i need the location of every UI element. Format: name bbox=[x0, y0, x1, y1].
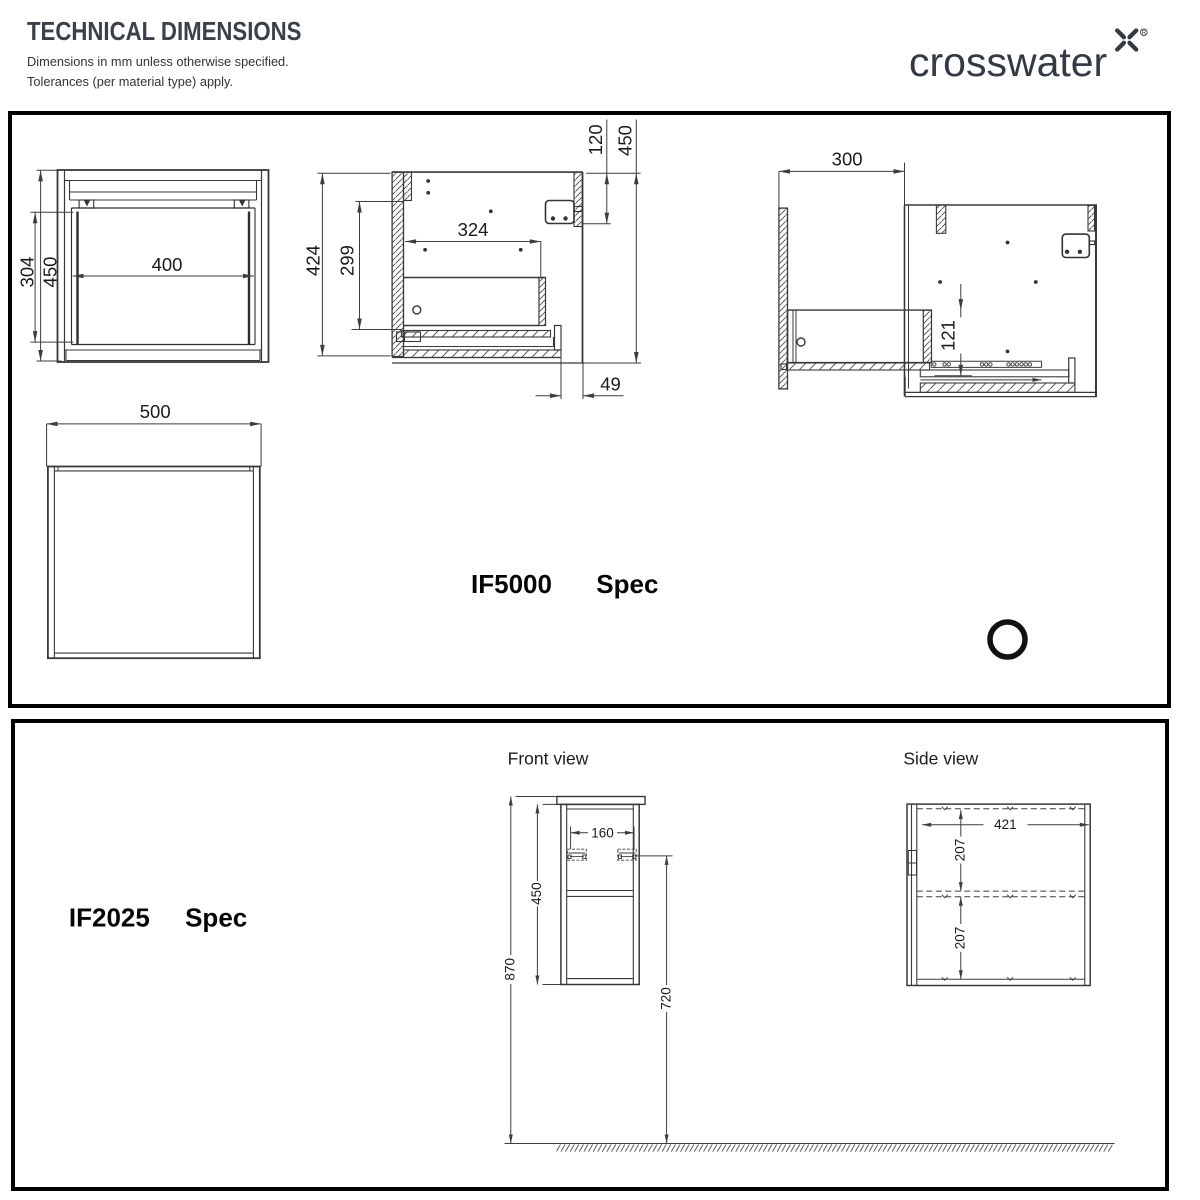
svg-text:870: 870 bbox=[503, 958, 518, 981]
svg-text:crosswater: crosswater bbox=[909, 39, 1107, 85]
svg-text:421: 421 bbox=[994, 817, 1017, 832]
svg-text:450: 450 bbox=[529, 882, 544, 905]
svg-text:207: 207 bbox=[953, 926, 968, 949]
svg-text:720: 720 bbox=[658, 987, 673, 1010]
svg-text:121: 121 bbox=[938, 320, 959, 351]
svg-text:424: 424 bbox=[303, 245, 324, 276]
svg-text:207: 207 bbox=[953, 838, 968, 861]
svg-text:299: 299 bbox=[337, 245, 358, 276]
svg-text:120: 120 bbox=[585, 124, 606, 155]
svg-text:304: 304 bbox=[17, 257, 38, 288]
svg-text:160: 160 bbox=[591, 825, 614, 840]
svg-text:Spec: Spec bbox=[185, 902, 247, 932]
svg-text:450: 450 bbox=[40, 257, 61, 288]
svg-text:400: 400 bbox=[152, 254, 183, 275]
svg-text:300: 300 bbox=[832, 149, 863, 170]
svg-text:500: 500 bbox=[140, 401, 171, 422]
svg-text:Front view: Front view bbox=[508, 748, 589, 768]
svg-text:450: 450 bbox=[615, 125, 636, 156]
svg-text:Spec: Spec bbox=[596, 569, 658, 599]
svg-text:49: 49 bbox=[600, 374, 621, 395]
svg-text:324: 324 bbox=[458, 219, 489, 240]
svg-text:R: R bbox=[1142, 30, 1147, 37]
svg-text:Side view: Side view bbox=[903, 748, 978, 768]
svg-text:IF2025: IF2025 bbox=[69, 902, 150, 932]
svg-text:IF5000: IF5000 bbox=[471, 569, 552, 599]
